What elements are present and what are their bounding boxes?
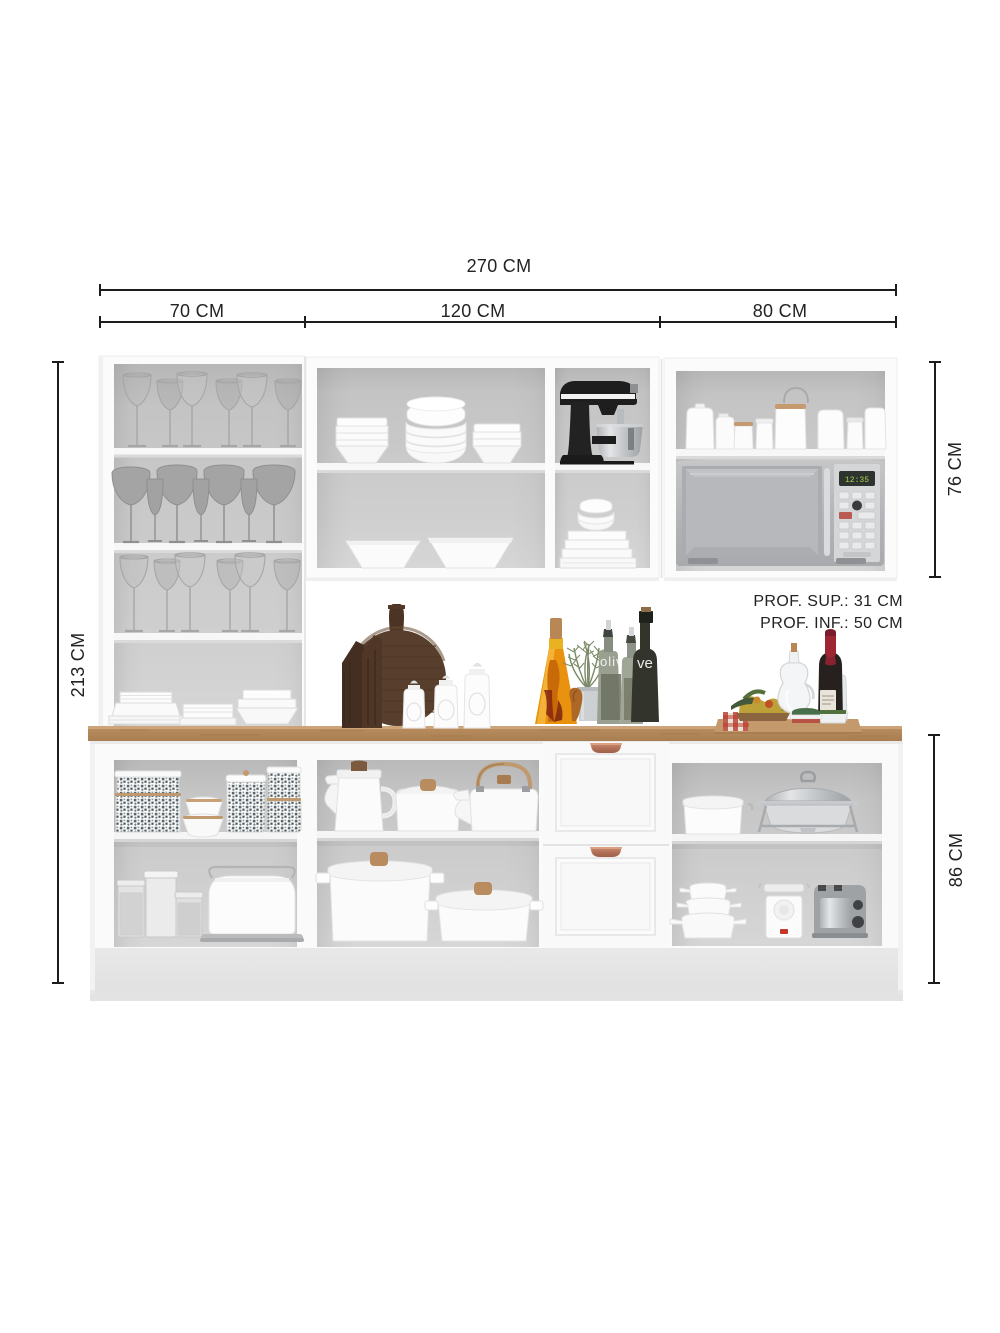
svg-text:70 CM: 70 CM bbox=[170, 301, 225, 321]
svg-text:86 CM: 86 CM bbox=[946, 833, 966, 888]
svg-text:12:35: 12:35 bbox=[845, 476, 869, 485]
svg-text:213 CM: 213 CM bbox=[68, 633, 88, 698]
svg-text:80 CM: 80 CM bbox=[753, 301, 808, 321]
svg-text:ve: ve bbox=[637, 655, 653, 672]
svg-text:270 CM: 270 CM bbox=[467, 256, 532, 276]
svg-text:oliv: oliv bbox=[600, 654, 624, 669]
svg-text:76 CM: 76 CM bbox=[945, 442, 965, 497]
svg-text:PROF. SUP.: 31 CM: PROF. SUP.: 31 CM bbox=[753, 593, 903, 610]
svg-text:120 CM: 120 CM bbox=[441, 301, 506, 321]
